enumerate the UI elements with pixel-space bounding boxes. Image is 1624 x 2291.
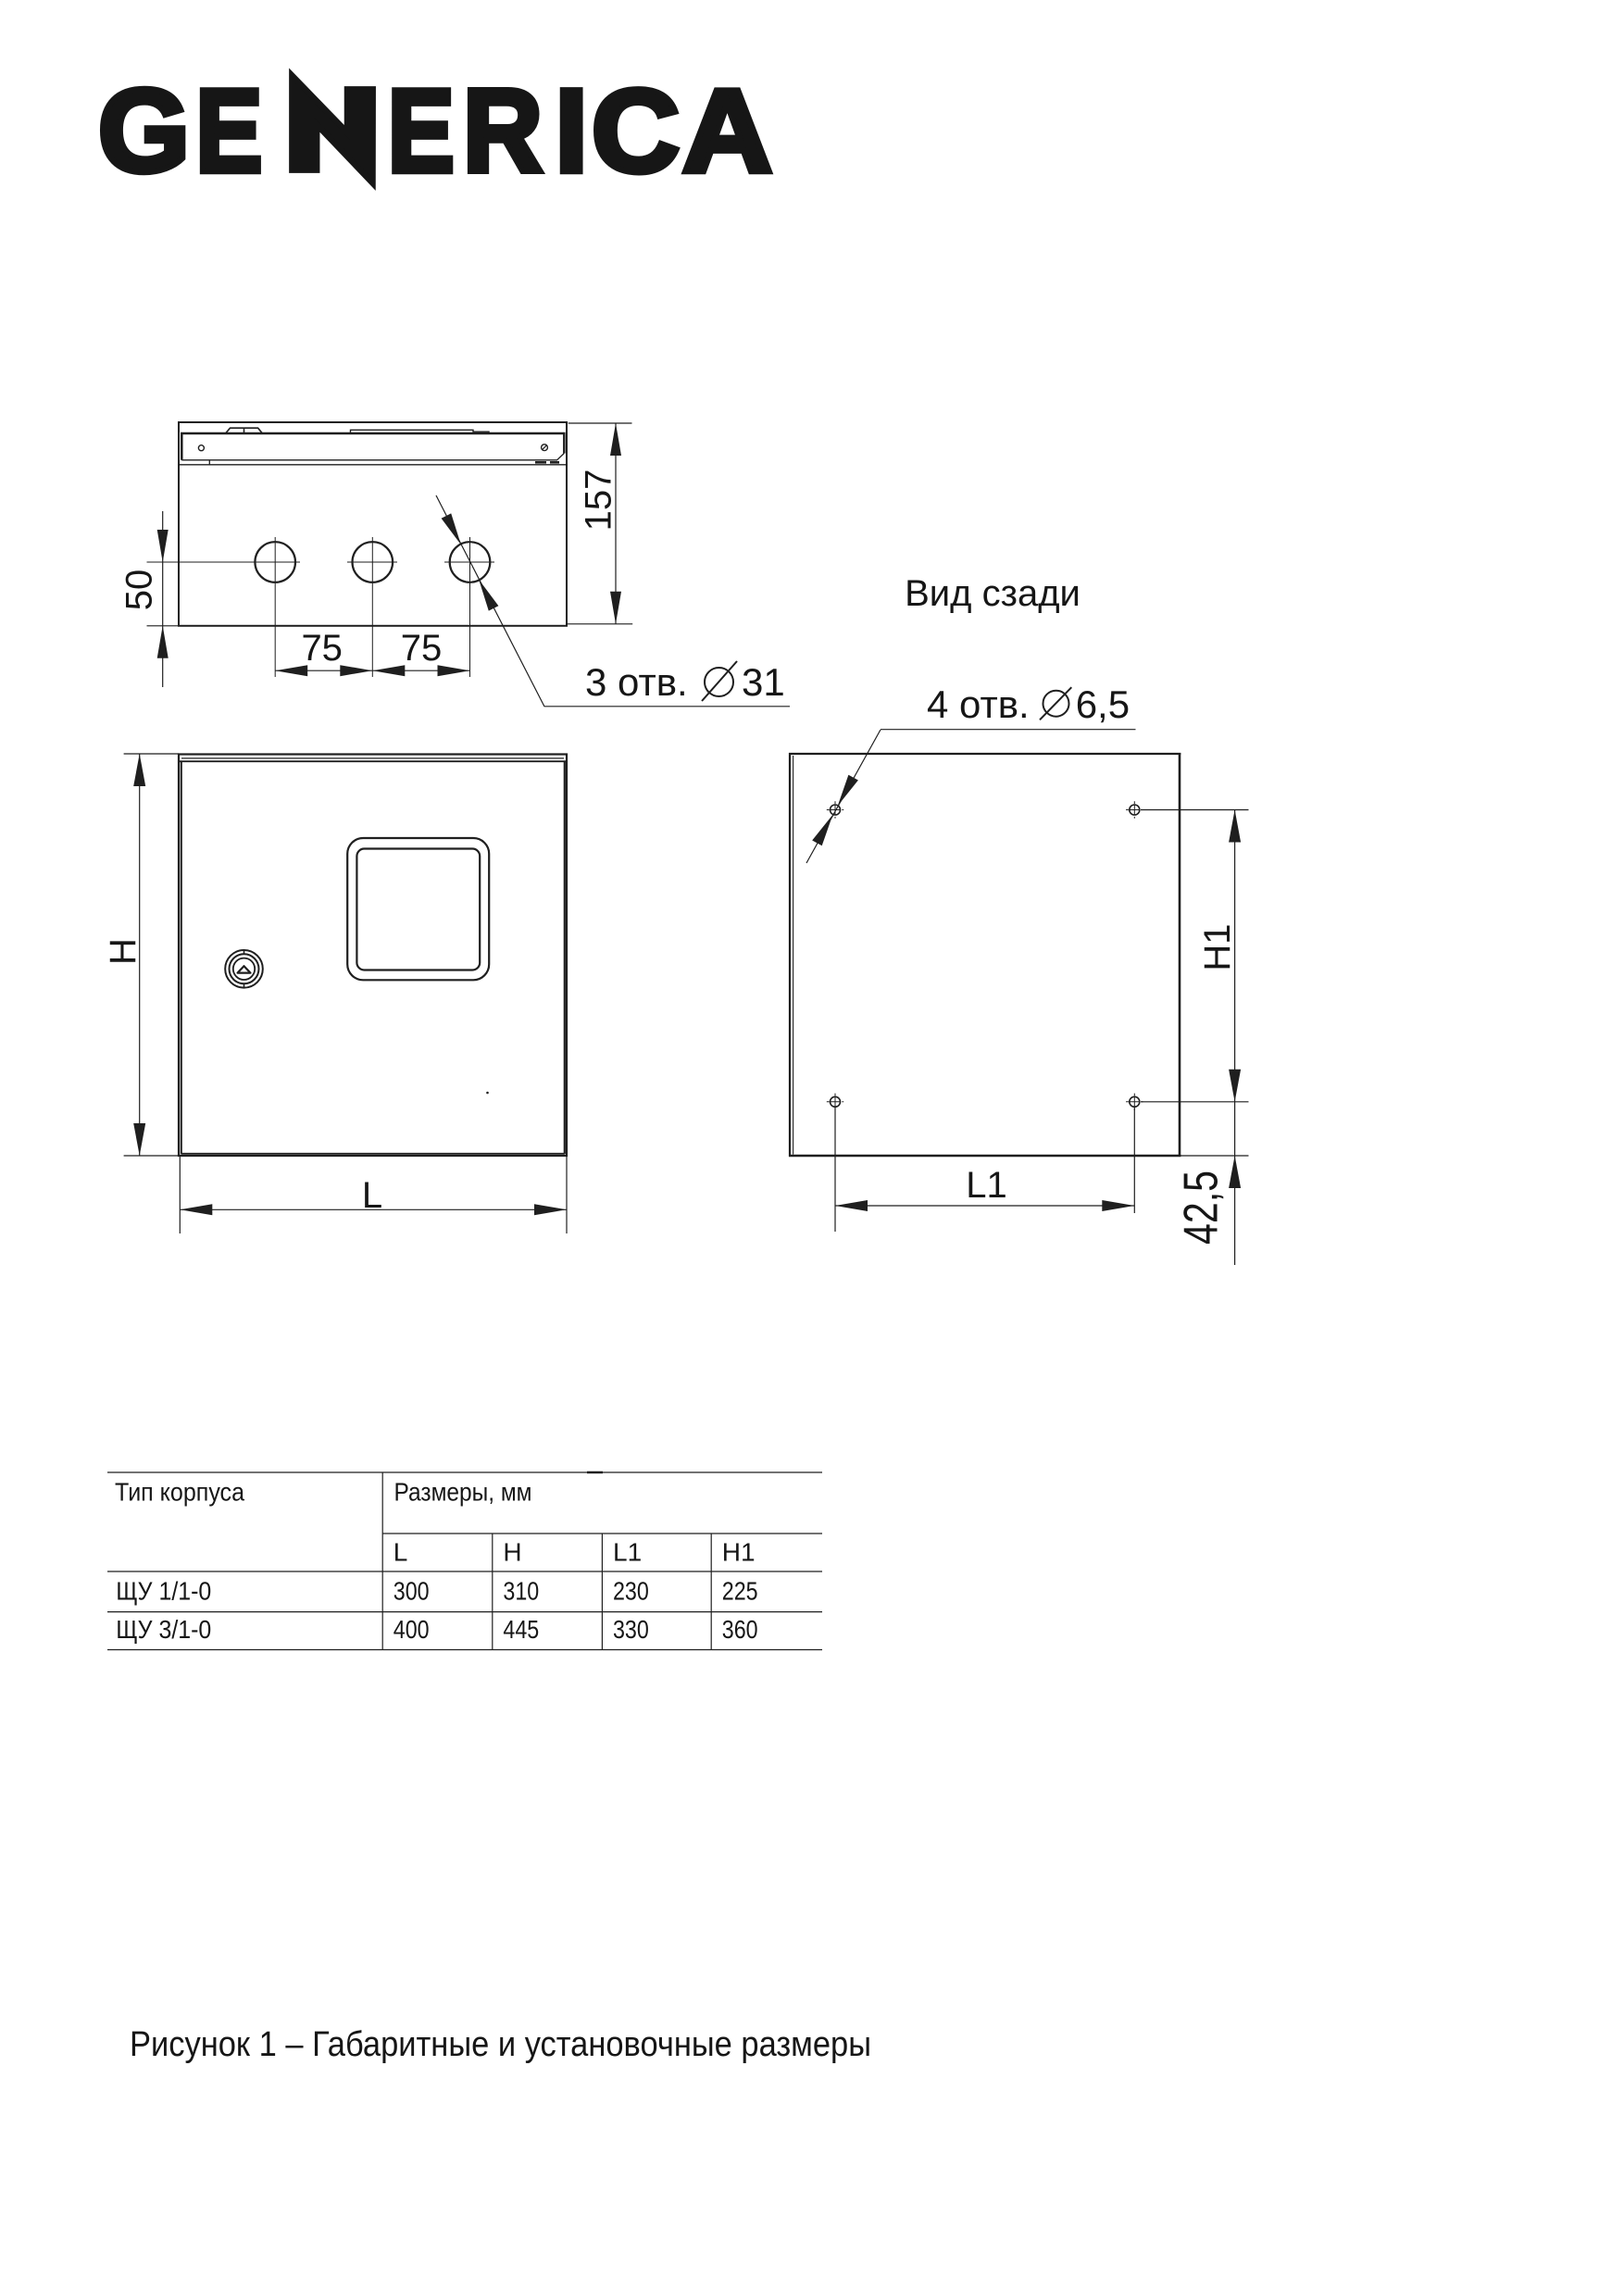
- svg-text:Размеры, мм: Размеры, мм: [394, 1478, 532, 1507]
- svg-text:Вид сзади: Вид сзади: [905, 573, 1081, 614]
- svg-text:50: 50: [119, 570, 159, 611]
- svg-text:445: 445: [503, 1615, 539, 1644]
- svg-text:Рисунок 1 – Габаритные и устан: Рисунок 1 – Габаритные и установочные ра…: [130, 2025, 871, 2064]
- svg-text:L1: L1: [613, 1538, 642, 1567]
- svg-text:225: 225: [722, 1576, 758, 1605]
- svg-text:4 отв.: 4 отв.: [927, 682, 1030, 726]
- svg-text:75: 75: [301, 628, 343, 669]
- svg-text:H: H: [503, 1538, 521, 1567]
- svg-text:L: L: [362, 1175, 382, 1216]
- svg-text:ЩУ 3/1-0: ЩУ 3/1-0: [116, 1615, 211, 1644]
- svg-text:400: 400: [394, 1615, 430, 1644]
- svg-text:L: L: [394, 1538, 408, 1567]
- svg-text:C: C: [592, 65, 680, 196]
- svg-text:H1: H1: [722, 1538, 756, 1567]
- svg-text:230: 230: [613, 1576, 649, 1605]
- svg-text:42,5: 42,5: [1175, 1171, 1229, 1245]
- svg-text:310: 310: [503, 1576, 539, 1605]
- svg-text:ЩУ 1/1-0: ЩУ 1/1-0: [116, 1576, 211, 1605]
- svg-text:6,5: 6,5: [1076, 682, 1130, 726]
- svg-text:R: R: [463, 65, 543, 196]
- svg-text:360: 360: [722, 1615, 758, 1644]
- svg-text:E: E: [195, 65, 262, 196]
- svg-text:Тип корпуса: Тип корпуса: [115, 1478, 244, 1507]
- svg-text:L1: L1: [966, 1165, 1007, 1206]
- svg-text:G: G: [98, 65, 190, 196]
- svg-text:300: 300: [394, 1576, 430, 1605]
- svg-text:H1: H1: [1197, 923, 1238, 970]
- svg-text:H: H: [103, 938, 144, 965]
- svg-text:75: 75: [401, 628, 443, 669]
- svg-text:I: I: [556, 65, 588, 196]
- svg-text:A: A: [682, 65, 772, 196]
- svg-text:330: 330: [613, 1615, 649, 1644]
- svg-text:3 отв.: 3 отв.: [585, 660, 688, 704]
- svg-text:31: 31: [742, 660, 785, 704]
- svg-text:157: 157: [579, 469, 619, 532]
- svg-text:E: E: [388, 65, 455, 196]
